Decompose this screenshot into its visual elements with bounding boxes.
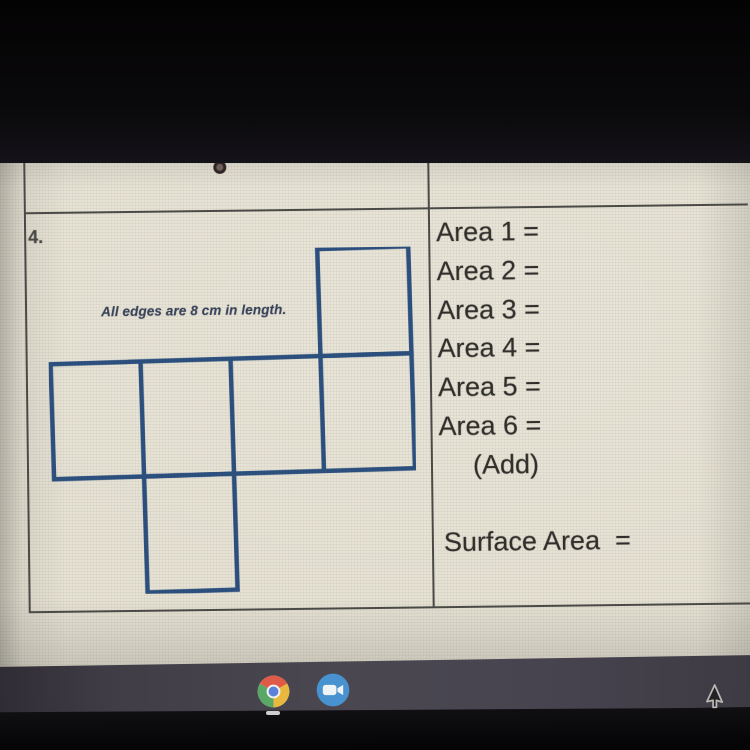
net-square-bottom	[144, 474, 238, 593]
cube-net-figure	[47, 247, 417, 595]
worksheet-table: 4. All edges are 8 cm in length. Area 1 …	[0, 163, 750, 668]
screen-top-bezel	[0, 0, 750, 163]
question-number: 4.	[28, 227, 43, 248]
area-label-6: Area 6 =	[438, 403, 748, 446]
answer-column: Area 1 = Area 2 = Area 3 = Area 4 = Area…	[436, 209, 750, 562]
chrome-active-indicator	[266, 711, 280, 715]
area-label-5: Area 5 =	[438, 365, 748, 408]
zoom-icon[interactable]	[316, 673, 350, 707]
area-label-1: Area 1 =	[436, 209, 746, 252]
table-column-divider	[427, 163, 435, 607]
area-label-4: Area 4 =	[437, 326, 747, 369]
chrome-icon[interactable]	[257, 675, 290, 708]
net-square-top	[317, 247, 411, 357]
screen-photo: 4. All edges are 8 cm in length. Area 1 …	[0, 0, 750, 750]
net-row-divider-1	[141, 362, 145, 477]
net-row-divider-2	[231, 359, 235, 474]
table-border-bottom	[29, 602, 750, 613]
screen-bottom-bezel	[0, 708, 750, 750]
add-note: (Add)	[439, 442, 749, 485]
area-label-2: Area 2 =	[436, 248, 746, 291]
net-row-divider-3	[320, 356, 324, 471]
surface-area-label: Surface Area =	[440, 520, 750, 563]
partial-character-remnant	[213, 163, 226, 174]
area-label-3: Area 3 =	[437, 287, 747, 330]
worksheet-page: 4. All edges are 8 cm in length. Area 1 …	[0, 163, 750, 668]
